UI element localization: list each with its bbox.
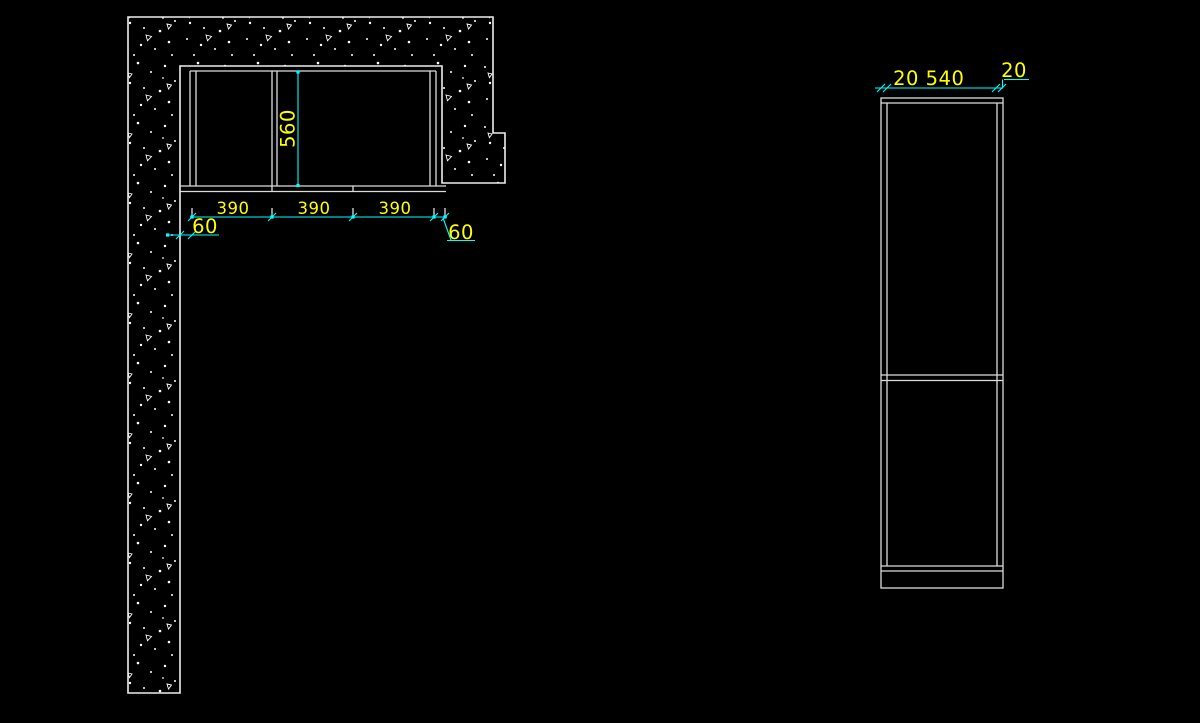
dim-left-panel: 20 xyxy=(893,67,919,90)
cabinet-middle-shelf xyxy=(881,375,1003,381)
front-edge-joints xyxy=(272,186,353,192)
plan-dimension-texts: 390 390 390 60 60 560 xyxy=(192,109,474,244)
dim-width-3: 390 xyxy=(379,199,412,218)
dim-right-panel: 20 xyxy=(1001,59,1027,82)
cabinet-outer-box xyxy=(881,98,1003,588)
countertop-edges xyxy=(180,186,446,192)
cabinet-left-panel xyxy=(190,71,196,186)
cabinet-right-panel xyxy=(430,71,436,186)
elevation-dimension-texts: 20 540 20 xyxy=(893,59,1027,90)
dim-left-offset: 60 xyxy=(192,215,218,238)
tall-cabinet-elevation xyxy=(881,98,1003,588)
dim-width-2: 390 xyxy=(298,199,331,218)
cabinet-side-panels xyxy=(887,103,997,566)
dim-width-1: 390 xyxy=(217,199,250,218)
dim-right-offset: 60 xyxy=(448,221,474,244)
base-cabinets-plan xyxy=(180,71,446,217)
cad-drawing-canvas[interactable]: 390 390 390 60 60 560 20 540 20 xyxy=(0,0,1200,723)
dim-depth: 560 xyxy=(277,109,300,148)
wall-section-plan xyxy=(128,17,505,693)
cabinet-bottom-panel xyxy=(881,566,1003,571)
dim-inner-width: 540 xyxy=(926,67,965,90)
